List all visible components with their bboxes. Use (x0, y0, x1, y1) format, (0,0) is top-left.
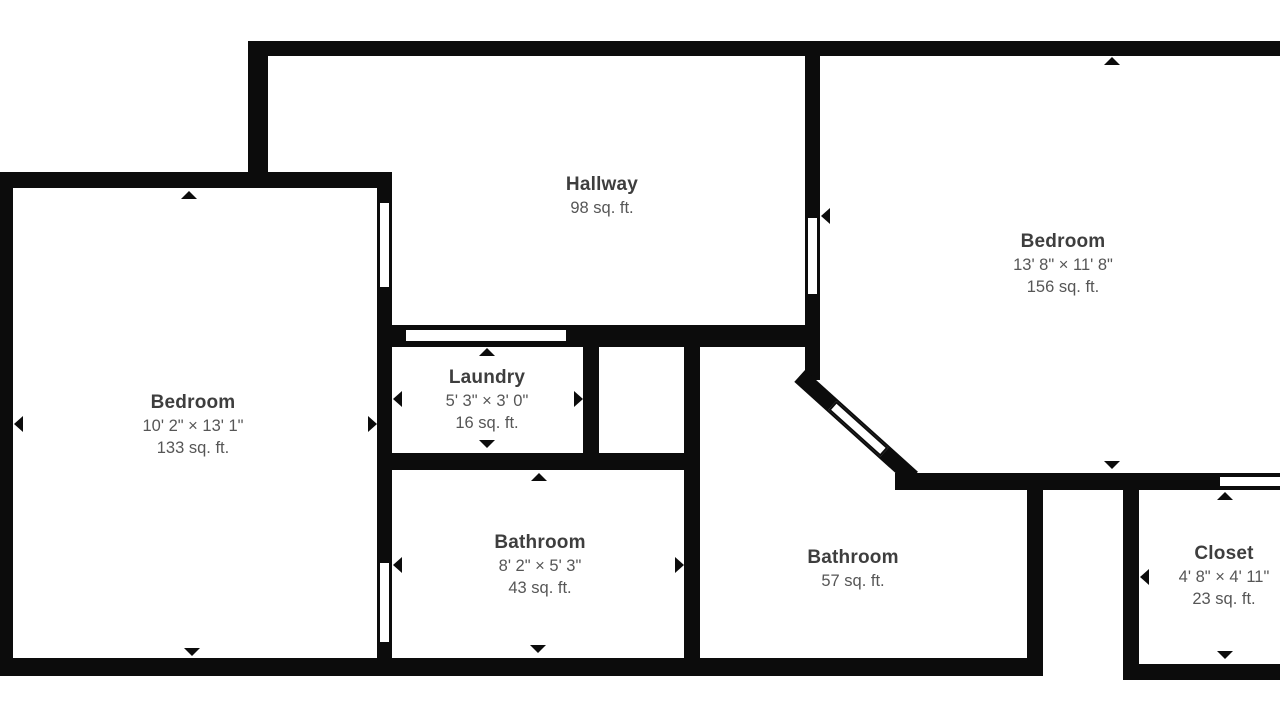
room-name: Bathroom (807, 545, 898, 570)
room-area: 43 sq. ft. (494, 577, 585, 599)
dimension-arrow-left-icon (1140, 569, 1149, 585)
wall-hallway-left (248, 41, 268, 188)
room-label-laundry: Laundry 5' 3" × 3' 0" 16 sq. ft. (446, 365, 529, 434)
room-area: 16 sq. ft. (446, 412, 529, 434)
dimension-arrow-down-icon (1217, 651, 1233, 659)
dimension-arrow-left-icon (821, 208, 830, 224)
dimension-arrow-left-icon (14, 416, 23, 432)
dimension-arrow-up-icon (531, 473, 547, 481)
room-label-bathroom-small: Bathroom 8' 2" × 5' 3" 43 sq. ft. (494, 530, 585, 599)
dimension-arrow-right-icon (368, 416, 377, 432)
dimension-arrow-up-icon (479, 348, 495, 356)
wall-bottom-main (0, 658, 1043, 676)
room-name: Bedroom (142, 390, 243, 415)
room-dimensions: 13' 8" × 11' 8" (1013, 254, 1113, 276)
wall-opening-diagonal-door (828, 401, 888, 457)
dimension-arrow-right-icon (574, 391, 583, 407)
room-name: Hallway (566, 172, 638, 197)
wall-opening-hallway-laundry (404, 328, 568, 343)
wall-opening-bedroom-bathroom (378, 561, 391, 644)
wall-top (248, 41, 1280, 56)
room-dimensions: 10' 2" × 13' 1" (142, 415, 243, 437)
room-name: Closet (1179, 541, 1270, 566)
room-dimensions: 5' 3" × 3' 0" (446, 390, 529, 412)
room-area: 57 sq. ft. (807, 570, 898, 592)
wall-opening-hallway-bedroom (806, 216, 819, 296)
room-name: Bedroom (1013, 229, 1113, 254)
dimension-arrow-left-icon (393, 557, 402, 573)
dimension-arrow-up-icon (1217, 492, 1233, 500)
wall-opening-bedroom-hallway (378, 201, 391, 289)
room-area: 23 sq. ft. (1179, 588, 1270, 610)
wall-bedroom-left-top (0, 172, 392, 188)
dimension-arrow-left-icon (393, 391, 402, 407)
wall-closet-bottom (1123, 664, 1280, 680)
wall-opening-bedroom-closet (1218, 475, 1280, 488)
room-dimensions: 4' 8" × 4' 11" (1179, 566, 1270, 588)
dimension-arrow-down-icon (1104, 461, 1120, 469)
wall-exterior-left (0, 172, 13, 676)
wall-hallway-bedroom-divider (805, 41, 820, 380)
wall-bathroom-right (1027, 473, 1043, 676)
room-label-bathroom-large: Bathroom 57 sq. ft. (807, 545, 898, 592)
room-label-bedroom-right: Bedroom 13' 8" × 11' 8" 156 sq. ft. (1013, 229, 1113, 298)
room-area: 98 sq. ft. (566, 197, 638, 219)
room-label-closet: Closet 4' 8" × 4' 11" 23 sq. ft. (1179, 541, 1270, 610)
room-area: 156 sq. ft. (1013, 276, 1113, 298)
room-label-hallway: Hallway 98 sq. ft. (566, 172, 638, 219)
wall-laundry-bottom (377, 453, 700, 470)
floor-plan: Hallway 98 sq. ft. Bedroom 13' 8" × 11' … (0, 0, 1280, 720)
dimension-arrow-down-icon (184, 648, 200, 656)
wall-closet-left (1123, 473, 1139, 680)
dimension-arrow-up-icon (181, 191, 197, 199)
dimension-arrow-right-icon (675, 557, 684, 573)
room-area: 133 sq. ft. (142, 437, 243, 459)
dimension-arrow-down-icon (530, 645, 546, 653)
dimension-arrow-down-icon (479, 440, 495, 448)
wall-laundry-right (583, 325, 599, 470)
room-dimensions: 8' 2" × 5' 3" (494, 555, 585, 577)
wall-center-divider (684, 325, 700, 676)
room-name: Laundry (446, 365, 529, 390)
room-name: Bathroom (494, 530, 585, 555)
dimension-arrow-up-icon (1104, 57, 1120, 65)
room-label-bedroom-left: Bedroom 10' 2" × 13' 1" 133 sq. ft. (142, 390, 243, 459)
wall-diagonal (794, 370, 918, 484)
